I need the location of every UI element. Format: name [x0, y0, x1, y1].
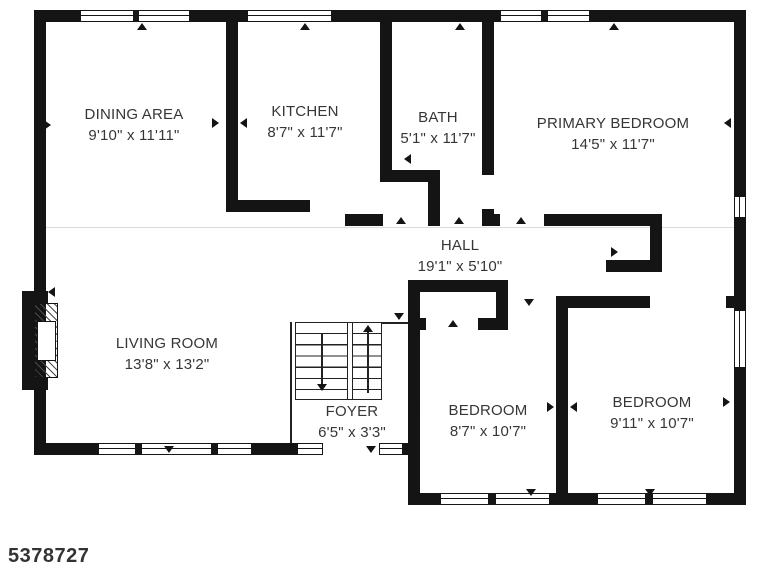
door-direction-marker	[137, 23, 147, 30]
guide-line	[40, 227, 734, 228]
wall-segment	[226, 22, 238, 212]
door-direction-marker	[570, 402, 577, 412]
room-name: LIVING ROOM	[116, 333, 218, 354]
room-dims: 5'1" x 11'7"	[400, 128, 475, 149]
door-direction-marker	[413, 403, 420, 413]
room-dims: 9'10" x 11'11"	[85, 125, 184, 146]
room-dims: 8'7" x 10'7"	[449, 421, 528, 442]
fireplace-wall	[22, 291, 34, 390]
room-label-hall: HALL 19'1" x 5'10"	[418, 235, 503, 277]
fireplace-wall	[22, 378, 48, 390]
window	[547, 10, 590, 22]
door-direction-marker	[366, 446, 376, 453]
window	[500, 10, 542, 22]
wall-segment	[428, 182, 440, 226]
wall-segment	[544, 214, 662, 226]
listing-id: 5378727	[8, 545, 89, 568]
room-dims: 13'8" x 13'2"	[116, 354, 218, 375]
room-label-kitchen: KITCHEN 8'7" x 11'7"	[267, 101, 342, 143]
room-label-bedroom-1: BEDROOM 8'7" x 10'7"	[449, 400, 528, 442]
wall-segment	[226, 200, 310, 212]
stairs-down-arrow	[321, 333, 323, 385]
wall-segment	[496, 292, 508, 320]
window	[98, 443, 136, 455]
room-name: HALL	[418, 235, 503, 256]
staircase	[295, 322, 382, 400]
wall-segment	[606, 260, 662, 272]
window	[217, 443, 252, 455]
room-label-living-room: LIVING ROOM 13'8" x 13'2"	[116, 333, 218, 375]
room-dims: 9'11" x 10'7"	[610, 413, 694, 434]
door-direction-marker	[448, 320, 458, 327]
window	[734, 196, 746, 218]
door-direction-marker	[396, 217, 406, 224]
door-direction-marker	[645, 489, 655, 496]
door-direction-marker	[611, 247, 618, 257]
wall-segment	[380, 170, 440, 182]
door-direction-marker	[547, 402, 554, 412]
wall-segment	[482, 214, 500, 226]
window	[440, 493, 489, 505]
room-name: FOYER	[318, 401, 386, 422]
window	[138, 10, 190, 22]
floor-plan: DINING AREA 9'10" x 11'11" KITCHEN 8'7" …	[0, 0, 768, 576]
door-direction-marker	[164, 446, 174, 453]
door-direction-marker	[404, 154, 411, 164]
fireplace-firebox	[37, 321, 56, 361]
window	[80, 10, 134, 22]
foyer-boundary-line	[290, 322, 292, 443]
room-label-foyer: FOYER 6'5" x 3'3"	[318, 401, 386, 443]
door-direction-marker	[724, 118, 731, 128]
door-direction-marker	[212, 118, 219, 128]
door-direction-marker	[394, 313, 404, 320]
wall-segment	[408, 280, 420, 505]
door-direction-marker	[455, 23, 465, 30]
window	[597, 493, 646, 505]
door-direction-marker	[44, 120, 51, 130]
wall-segment	[345, 214, 383, 226]
wall-segment	[726, 296, 746, 308]
room-label-primary-bedroom: PRIMARY BEDROOM 14'5" x 11'7"	[537, 113, 689, 155]
room-label-bath: BATH 5'1" x 11'7"	[400, 107, 475, 149]
room-name: BATH	[400, 107, 475, 128]
door-direction-marker	[723, 397, 730, 407]
door-direction-marker	[516, 217, 526, 224]
room-label-dining-area: DINING AREA 9'10" x 11'11"	[85, 104, 184, 146]
door-direction-marker	[240, 118, 247, 128]
window	[734, 310, 746, 368]
sidelite-window	[297, 443, 323, 455]
room-name: PRIMARY BEDROOM	[537, 113, 689, 134]
room-name: KITCHEN	[267, 101, 342, 122]
door-direction-marker	[48, 287, 55, 297]
wall-segment	[478, 318, 508, 330]
room-name: BEDROOM	[449, 400, 528, 421]
window	[247, 10, 332, 22]
wall-segment	[482, 22, 494, 175]
door-direction-marker	[300, 23, 310, 30]
sidelite-window	[379, 443, 403, 455]
stairs-up-arrow-icon	[363, 325, 373, 332]
door-direction-marker	[526, 489, 536, 496]
window	[141, 443, 212, 455]
door-direction-marker	[609, 23, 619, 30]
wall-segment	[408, 318, 426, 330]
wall-segment	[734, 10, 746, 505]
room-dims: 19'1" x 5'10"	[418, 256, 503, 277]
wall-segment	[380, 22, 392, 170]
wall-segment	[408, 280, 508, 292]
window	[652, 493, 707, 505]
door-direction-marker	[454, 217, 464, 224]
room-name: DINING AREA	[85, 104, 184, 125]
wall-segment	[556, 296, 650, 308]
stairs-down-arrow-icon	[317, 384, 327, 391]
window	[495, 493, 550, 505]
door-direction-marker	[486, 118, 493, 128]
wall-segment	[556, 296, 568, 505]
room-label-bedroom-2: BEDROOM 9'11" x 10'7"	[610, 392, 694, 434]
landing-line	[382, 322, 408, 324]
room-dims: 6'5" x 3'3"	[318, 422, 386, 443]
stairs-up-arrow	[367, 331, 369, 393]
room-name: BEDROOM	[610, 392, 694, 413]
stair-divider	[347, 323, 353, 399]
room-dims: 8'7" x 11'7"	[267, 122, 342, 143]
door-direction-marker	[524, 299, 534, 306]
room-dims: 14'5" x 11'7"	[537, 134, 689, 155]
